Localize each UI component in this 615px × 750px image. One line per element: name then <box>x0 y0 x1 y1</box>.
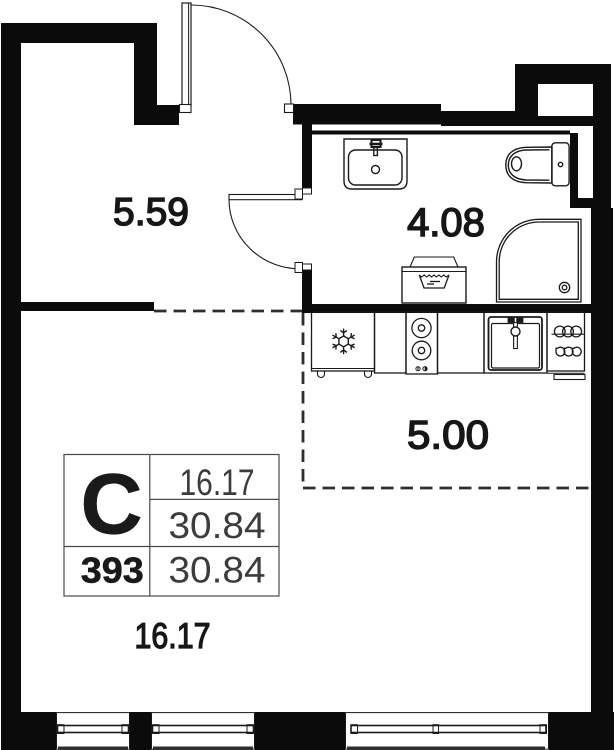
svg-text:16.17: 16.17 <box>135 615 211 656</box>
svg-text:30.84: 30.84 <box>169 550 266 591</box>
svg-text:С: С <box>80 457 142 553</box>
svg-text:5.00: 5.00 <box>407 414 489 458</box>
svg-text:16.17: 16.17 <box>180 462 255 503</box>
svg-text:4.08: 4.08 <box>407 201 485 245</box>
svg-text:393: 393 <box>81 550 144 591</box>
svg-text:30.84: 30.84 <box>169 505 266 546</box>
svg-text:5.59: 5.59 <box>113 191 189 234</box>
